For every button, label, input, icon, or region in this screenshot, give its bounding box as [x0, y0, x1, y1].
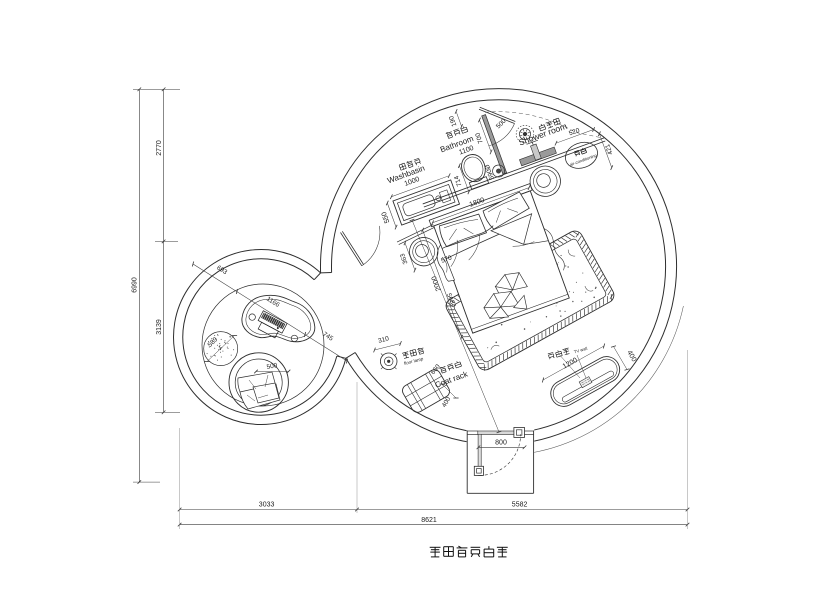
svg-text:5582: 5582	[512, 502, 528, 509]
svg-text:3139: 3139	[156, 319, 163, 335]
svg-text:2770: 2770	[156, 140, 163, 156]
svg-text:8621: 8621	[421, 517, 437, 524]
svg-text:6990: 6990	[132, 277, 139, 293]
svg-text:800: 800	[495, 440, 507, 447]
svg-text:3033: 3033	[259, 502, 275, 509]
